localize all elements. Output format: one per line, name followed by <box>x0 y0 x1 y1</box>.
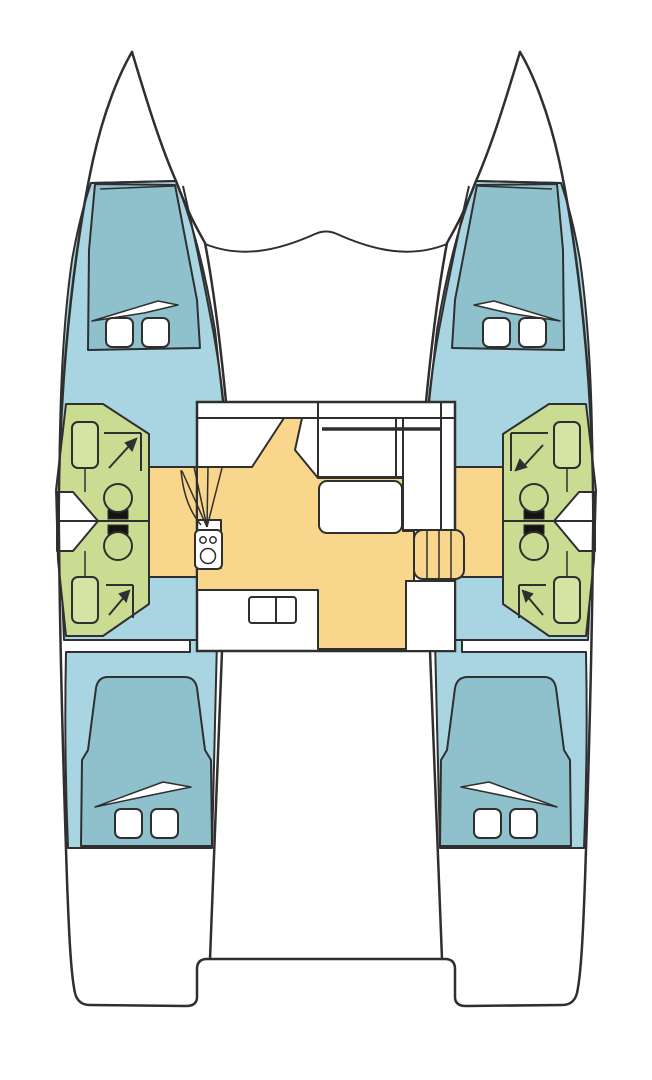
bridge-passage-port <box>149 467 197 577</box>
floor-plan-canvas <box>0 0 652 1080</box>
basin-icon <box>72 577 98 623</box>
pillow <box>474 809 501 838</box>
companionway-stairs-starboard <box>414 530 464 579</box>
sink-icon <box>249 597 296 623</box>
dinette-table <box>319 481 402 533</box>
galley-stove <box>195 530 222 569</box>
toilet-icon <box>520 532 548 560</box>
pillow <box>106 318 133 347</box>
basin-icon <box>554 422 580 468</box>
toilet-icon <box>104 484 132 512</box>
pillow <box>510 809 537 838</box>
pillow <box>115 809 142 838</box>
pillow <box>142 318 169 347</box>
forward-seat <box>318 418 403 477</box>
stair-step <box>207 467 208 527</box>
seat-block <box>318 418 403 477</box>
aft-berth-starboard <box>440 677 571 846</box>
aft-berth-port <box>81 677 212 846</box>
galley-sink <box>249 597 296 623</box>
pillow <box>519 318 546 347</box>
pillow <box>483 318 510 347</box>
pillow <box>151 809 178 838</box>
toilet-icon <box>104 532 132 560</box>
catamaran-floor-plan <box>0 0 652 1080</box>
salon <box>181 402 464 651</box>
basin-icon <box>72 422 98 468</box>
galley-cabinet <box>406 581 455 651</box>
toilet-icon <box>520 484 548 512</box>
basin-icon <box>554 577 580 623</box>
